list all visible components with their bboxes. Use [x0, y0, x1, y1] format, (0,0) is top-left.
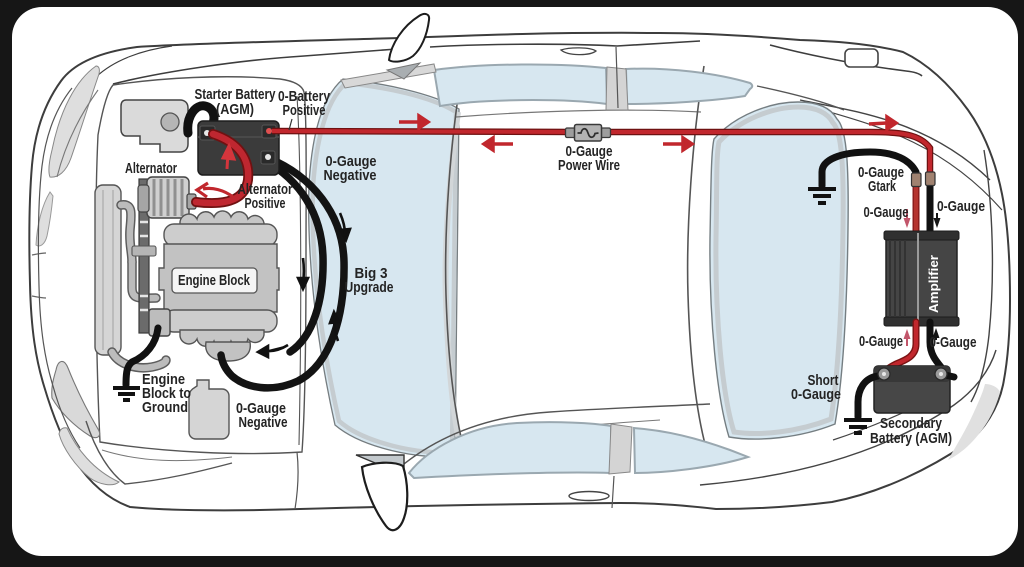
svg-text:0-Gauge: 0-Gauge — [937, 199, 985, 215]
svg-text:Engine Block: Engine Block — [178, 273, 251, 289]
svg-text:Alternator: Alternator — [125, 161, 177, 177]
svg-text:0-Gauge: 0-Gauge — [930, 335, 977, 351]
svg-text:Secondary: Secondary — [880, 416, 943, 432]
svg-text:Ground: Ground — [142, 400, 188, 416]
svg-text:0-Gauge: 0-Gauge — [864, 205, 909, 221]
svg-text:Battery (AGM): Battery (AGM) — [870, 431, 952, 447]
svg-text:Upgrade: Upgrade — [345, 280, 394, 296]
svg-text:Negative: Negative — [239, 415, 288, 431]
svg-text:Power Wire: Power Wire — [558, 158, 620, 174]
svg-text:Amplifier: Amplifier — [926, 255, 941, 313]
svg-text:Positive: Positive — [245, 196, 286, 212]
svg-text:Starter Battery: Starter Battery — [195, 87, 277, 103]
svg-text:0-Gauge: 0-Gauge — [859, 334, 903, 350]
svg-text:Positive: Positive — [283, 103, 326, 119]
svg-text:0-Gauge: 0-Gauge — [791, 387, 841, 403]
svg-text:Negative: Negative — [324, 168, 377, 184]
svg-text:(AGM): (AGM) — [216, 102, 254, 118]
svg-text:Gtark: Gtark — [868, 179, 897, 195]
